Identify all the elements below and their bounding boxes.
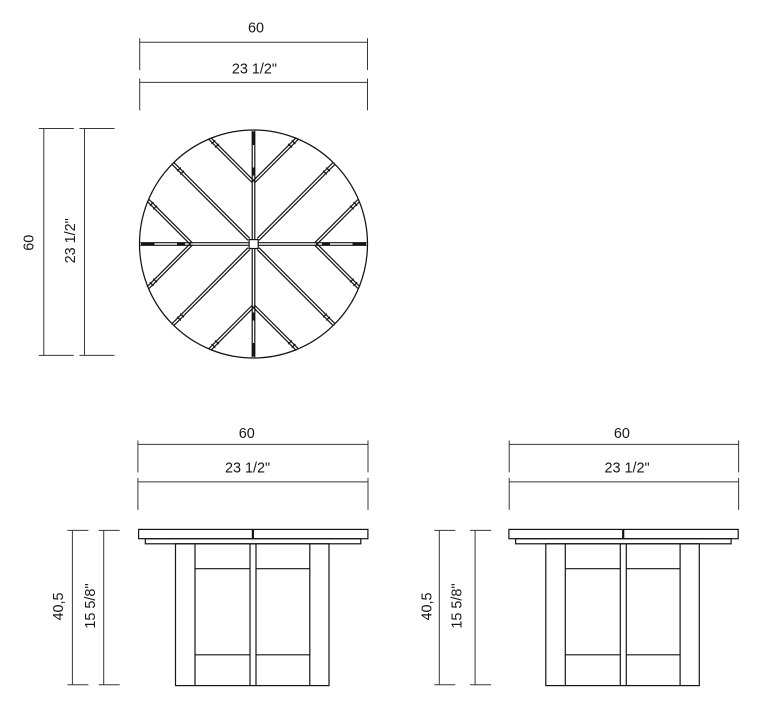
svg-text:60: 60 [614,426,630,442]
svg-text:60: 60 [22,235,38,251]
svg-text:23 1/2": 23 1/2" [604,460,649,476]
svg-text:15 5/8": 15 5/8" [449,583,465,628]
svg-text:60: 60 [239,426,255,442]
svg-text:23 1/2": 23 1/2" [232,61,277,77]
svg-text:60: 60 [248,21,264,37]
svg-text:15 5/8": 15 5/8" [83,583,99,628]
svg-text:23 1/2": 23 1/2" [63,218,79,263]
svg-text:23 1/2": 23 1/2" [225,460,270,476]
svg-text:40,5: 40,5 [420,592,436,620]
svg-text:40,5: 40,5 [51,592,67,620]
